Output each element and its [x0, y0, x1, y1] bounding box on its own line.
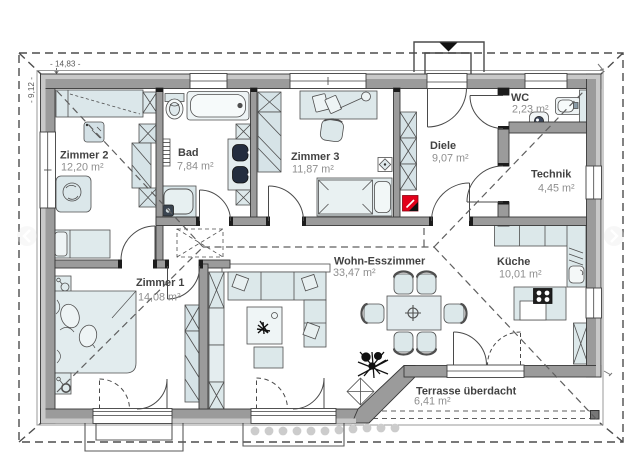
svg-text:2,23 m²: 2,23 m²	[512, 104, 549, 116]
svg-text:10,01 m²: 10,01 m²	[499, 269, 542, 281]
svg-text:11,87 m²: 11,87 m²	[292, 164, 334, 176]
svg-text:Wohn-Esszimmer: Wohn-Esszimmer	[334, 256, 426, 268]
svg-text:9,07 m²: 9,07 m²	[432, 153, 469, 165]
svg-text:- 9,12 -: - 9,12 -	[27, 77, 36, 103]
svg-text:Küche: Küche	[497, 256, 530, 268]
svg-text:Zimmer 3: Zimmer 3	[291, 151, 339, 163]
svg-text:6,41 m²: 6,41 m²	[414, 396, 451, 408]
svg-text:- 14,83 -: - 14,83 -	[50, 60, 81, 69]
svg-text:4,45 m²: 4,45 m²	[538, 183, 575, 195]
svg-text:12,20 m²: 12,20 m²	[61, 162, 104, 174]
svg-text:WC: WC	[511, 92, 529, 104]
svg-text:Zimmer 2: Zimmer 2	[60, 150, 108, 162]
svg-text:Bad: Bad	[178, 147, 199, 159]
svg-text:Diele: Diele	[430, 140, 456, 152]
svg-text:Technik: Technik	[531, 169, 572, 181]
svg-text:7,84 m²: 7,84 m²	[177, 161, 214, 173]
svg-text:33,47 m²: 33,47 m²	[333, 267, 376, 279]
svg-text:14,08 m²: 14,08 m²	[138, 292, 181, 304]
svg-text:Zimmer 1: Zimmer 1	[136, 277, 184, 289]
